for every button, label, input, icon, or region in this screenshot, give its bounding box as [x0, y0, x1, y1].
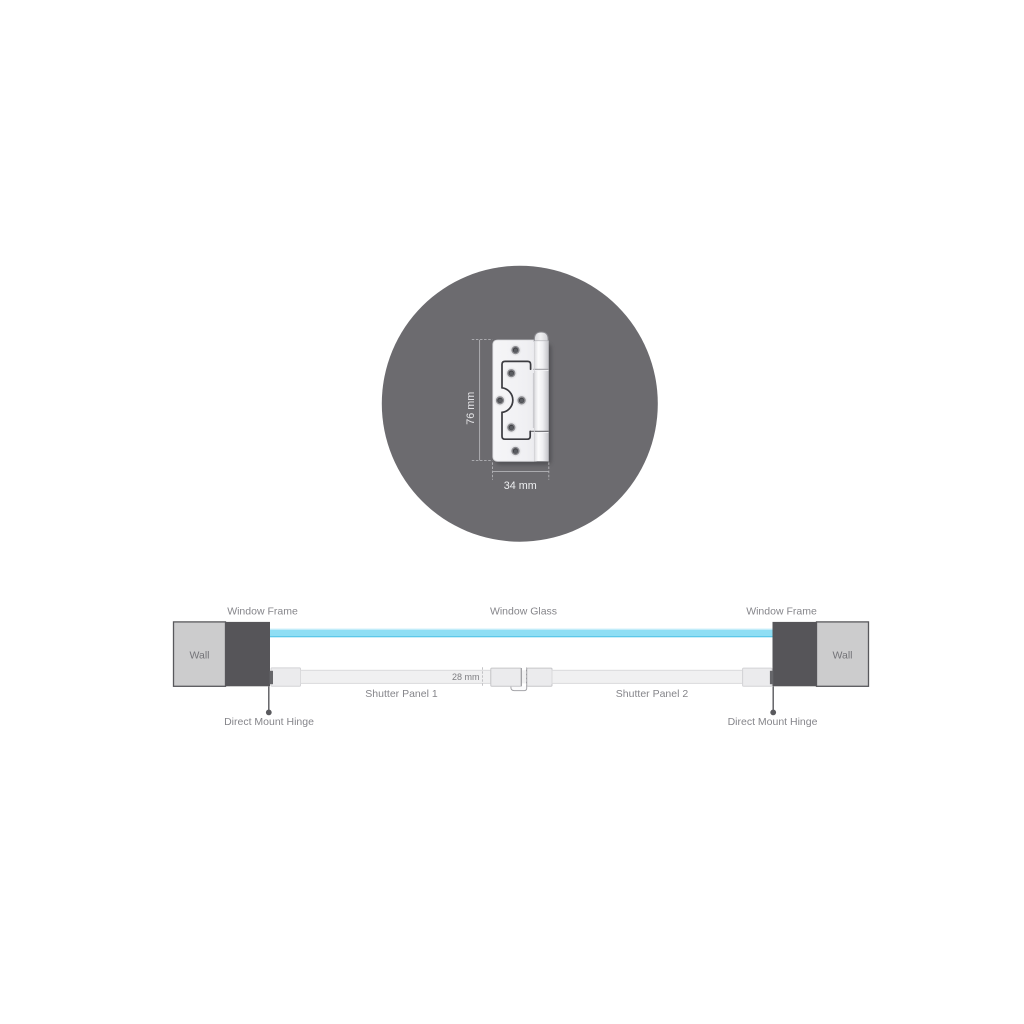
- svg-text:Wall: Wall: [832, 649, 852, 661]
- svg-text:Window Glass: Window Glass: [490, 606, 557, 618]
- svg-text:34 mm: 34 mm: [504, 480, 537, 492]
- svg-text:Direct Mount Hinge: Direct Mount Hinge: [224, 716, 314, 728]
- svg-text:28 mm: 28 mm: [452, 672, 480, 682]
- svg-text:Shutter Panel 1: Shutter Panel 1: [365, 688, 438, 700]
- svg-text:Wall: Wall: [189, 649, 209, 661]
- svg-text:Window Frame: Window Frame: [746, 606, 817, 618]
- svg-text:76 mm: 76 mm: [465, 392, 477, 425]
- svg-text:Direct Mount Hinge: Direct Mount Hinge: [728, 716, 818, 728]
- svg-text:Window Frame: Window Frame: [227, 606, 298, 618]
- svg-text:Shutter Panel 2: Shutter Panel 2: [616, 688, 689, 700]
